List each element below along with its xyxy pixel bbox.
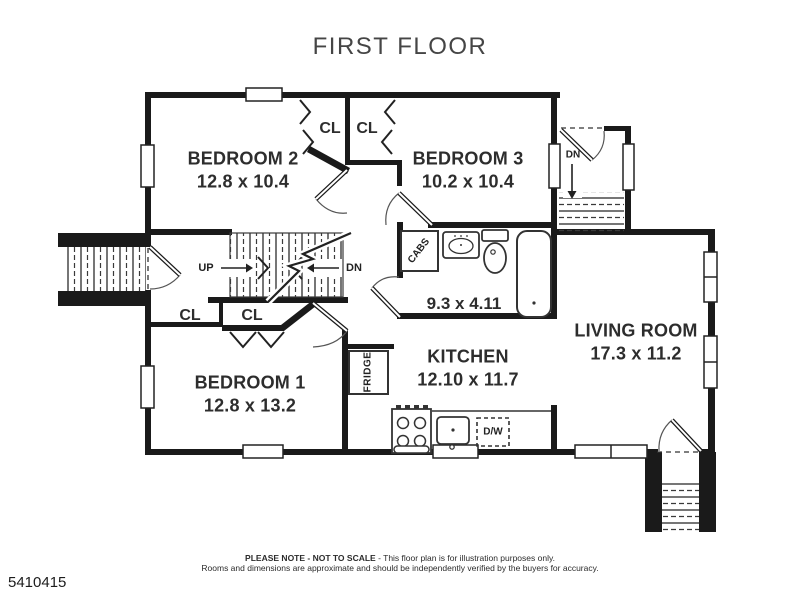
rear-door-arc bbox=[659, 420, 672, 451]
window-stairwell-left bbox=[549, 144, 560, 188]
window-left-bedroom2 bbox=[141, 145, 154, 187]
kitchen-name: KITCHEN bbox=[417, 346, 519, 369]
window-left-bedroom1 bbox=[141, 366, 154, 408]
stove-handle bbox=[394, 446, 429, 453]
listing-id: 5410415 bbox=[8, 574, 66, 591]
kitchen-sink bbox=[437, 417, 469, 449]
closet-lower-left-label: CL bbox=[179, 307, 200, 325]
bedroom3-dims: 10.2 x 10.4 bbox=[413, 170, 524, 193]
bedroom1-dims: 12.8 x 13.2 bbox=[195, 394, 306, 417]
window-bottom-kitchen bbox=[433, 445, 478, 458]
central-staircase bbox=[216, 233, 351, 302]
bathroom-door-arc bbox=[372, 277, 399, 288]
basement-staircase bbox=[559, 128, 624, 232]
kitchen-dims: 12.10 x 11.7 bbox=[417, 368, 519, 391]
disclaimer-bold: PLEASE NOTE - NOT TO SCALE bbox=[245, 553, 376, 563]
toilet bbox=[482, 230, 508, 273]
bedroom3-name: BEDROOM 3 bbox=[413, 148, 524, 171]
living-room-name: LIVING ROOM bbox=[574, 320, 697, 343]
living-room-label: LIVING ROOM 17.3 x 11.2 bbox=[574, 320, 697, 365]
closet-top-right-bifold bbox=[385, 100, 395, 124]
bedroom2-name: BEDROOM 2 bbox=[188, 148, 299, 171]
disclaimer-rest: - This floor plan is for illustration pu… bbox=[376, 553, 555, 563]
bedroom1-label: BEDROOM 1 12.8 x 13.2 bbox=[195, 372, 306, 417]
living-room-dims: 17.3 x 11.2 bbox=[574, 342, 697, 365]
bedroom2-door-arc bbox=[316, 199, 347, 213]
exterior-steps-right bbox=[645, 452, 716, 532]
dishwasher-label: D/W bbox=[483, 427, 502, 438]
bedroom2-label: BEDROOM 2 12.8 x 10.4 bbox=[188, 148, 299, 193]
bedroom1-door-arc bbox=[313, 331, 347, 347]
plan-title: FIRST FLOOR bbox=[313, 33, 488, 61]
stairwell-down-label: DN bbox=[566, 150, 580, 161]
stairs-up-label: UP bbox=[198, 262, 213, 274]
floor-plan-drawing bbox=[0, 0, 800, 599]
floor-plan-page: FIRST FLOOR BEDROOM 2 12.8 x 10.4 BEDROO… bbox=[0, 0, 800, 599]
window-bottom-bedroom1 bbox=[243, 445, 283, 458]
entry-door-arc bbox=[150, 275, 180, 289]
disclaimer-line1: PLEASE NOTE - NOT TO SCALE - This floor … bbox=[245, 553, 555, 563]
stove bbox=[392, 405, 431, 453]
bathroom-dims: 9.3 x 4.11 bbox=[427, 294, 502, 314]
closet-bedroom1-bifold-1 bbox=[230, 332, 256, 347]
bedroom1-name: BEDROOM 1 bbox=[195, 372, 306, 395]
bedroom3-door-arc bbox=[386, 193, 399, 225]
window-top-bedroom2 bbox=[246, 88, 282, 101]
fridge-label: FRIDGE bbox=[363, 352, 374, 393]
window-stairwell-right bbox=[623, 144, 634, 190]
stairs-down-label: DN bbox=[346, 262, 362, 274]
bedroom3-label: BEDROOM 3 10.2 x 10.4 bbox=[413, 148, 524, 193]
closet-top-right-label: CL bbox=[356, 120, 377, 138]
bathroom-sink bbox=[443, 232, 479, 258]
stairwell-door-arc bbox=[592, 131, 604, 160]
entry-steps-left bbox=[58, 233, 151, 306]
kitchen-label: KITCHEN 12.10 x 11.7 bbox=[417, 346, 519, 391]
closet-lower-mid-label: CL bbox=[241, 307, 262, 325]
closet-top-left-bifold bbox=[300, 100, 310, 124]
bedroom2-dims: 12.8 x 10.4 bbox=[188, 170, 299, 193]
closet-bedroom1-bifold-2 bbox=[258, 332, 284, 347]
disclaimer-line2: Rooms and dimensions are approximate and… bbox=[201, 563, 598, 573]
closet-top-left-label: CL bbox=[319, 120, 340, 138]
bathtub-drain bbox=[532, 301, 535, 304]
